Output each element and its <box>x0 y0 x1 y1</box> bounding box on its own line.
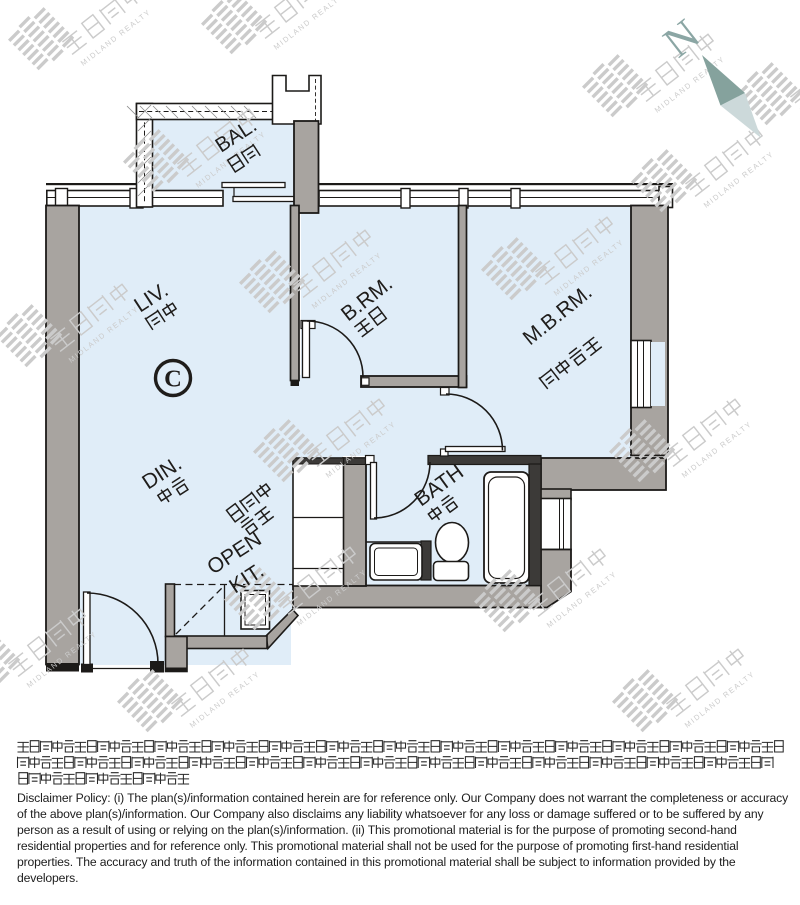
svg-text:N: N <box>655 11 708 67</box>
svg-text:C: C <box>164 366 182 393</box>
